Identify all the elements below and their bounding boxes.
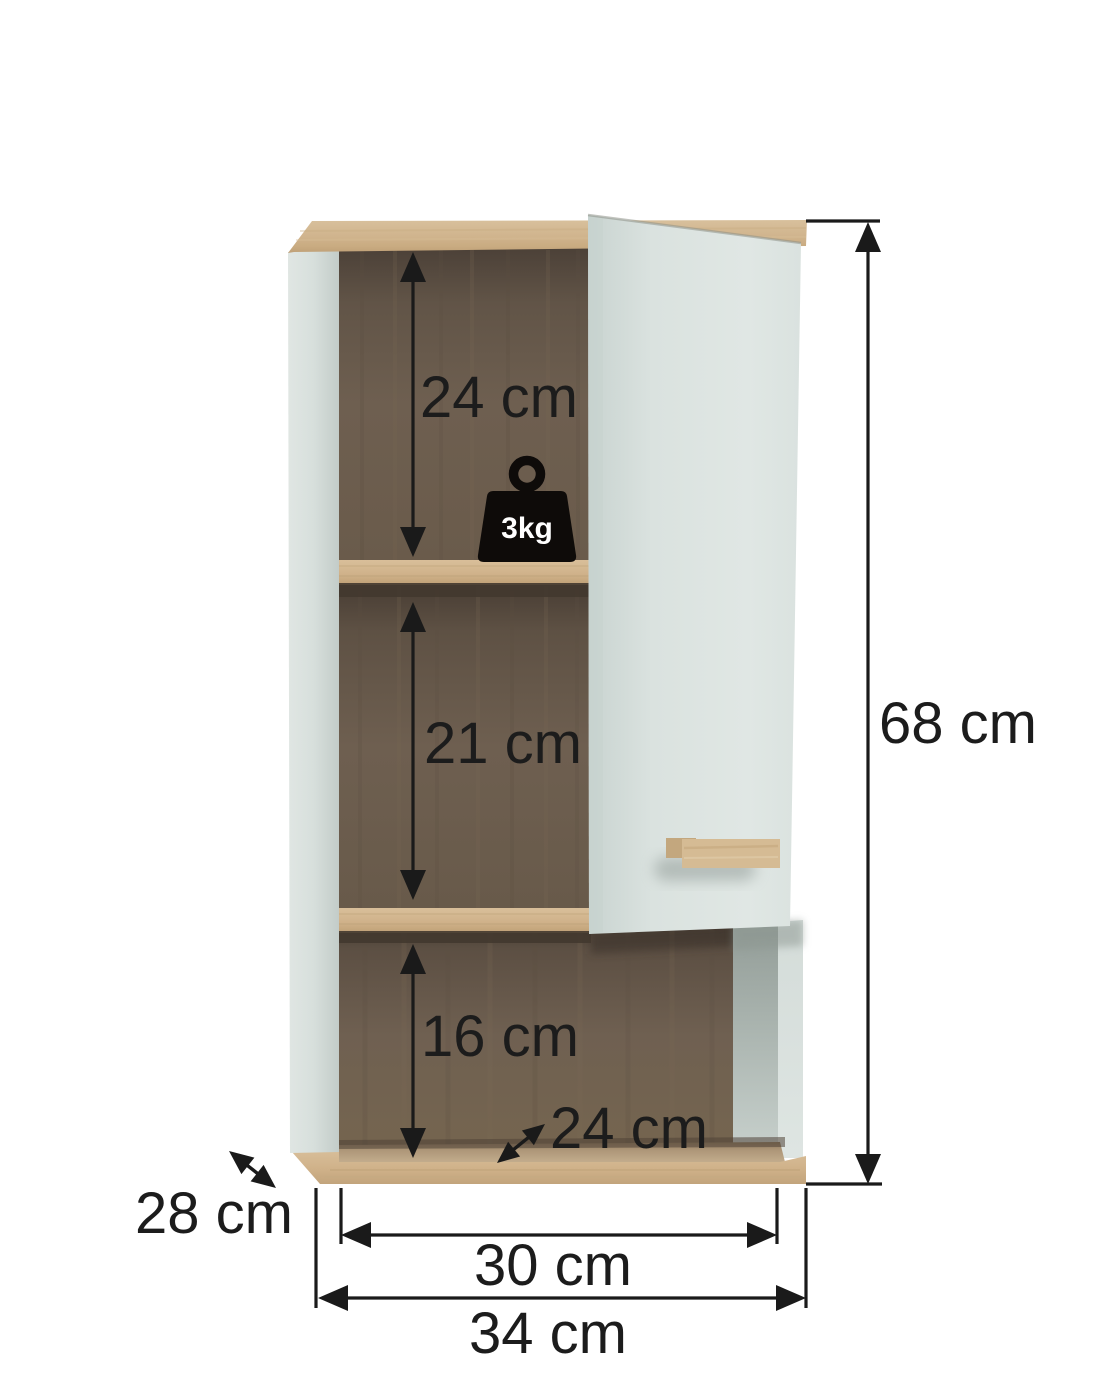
svg-text:21 cm: 21 cm xyxy=(424,711,582,776)
svg-text:68 cm: 68 cm xyxy=(879,691,1037,756)
svg-text:34 cm: 34 cm xyxy=(469,1301,627,1366)
svg-text:24 cm: 24 cm xyxy=(420,365,578,430)
svg-text:30 cm: 30 cm xyxy=(474,1233,632,1298)
svg-text:3kg: 3kg xyxy=(501,512,553,545)
svg-text:24 cm: 24 cm xyxy=(550,1096,708,1161)
svg-text:28 cm: 28 cm xyxy=(135,1181,293,1246)
svg-text:16 cm: 16 cm xyxy=(421,1004,579,1069)
